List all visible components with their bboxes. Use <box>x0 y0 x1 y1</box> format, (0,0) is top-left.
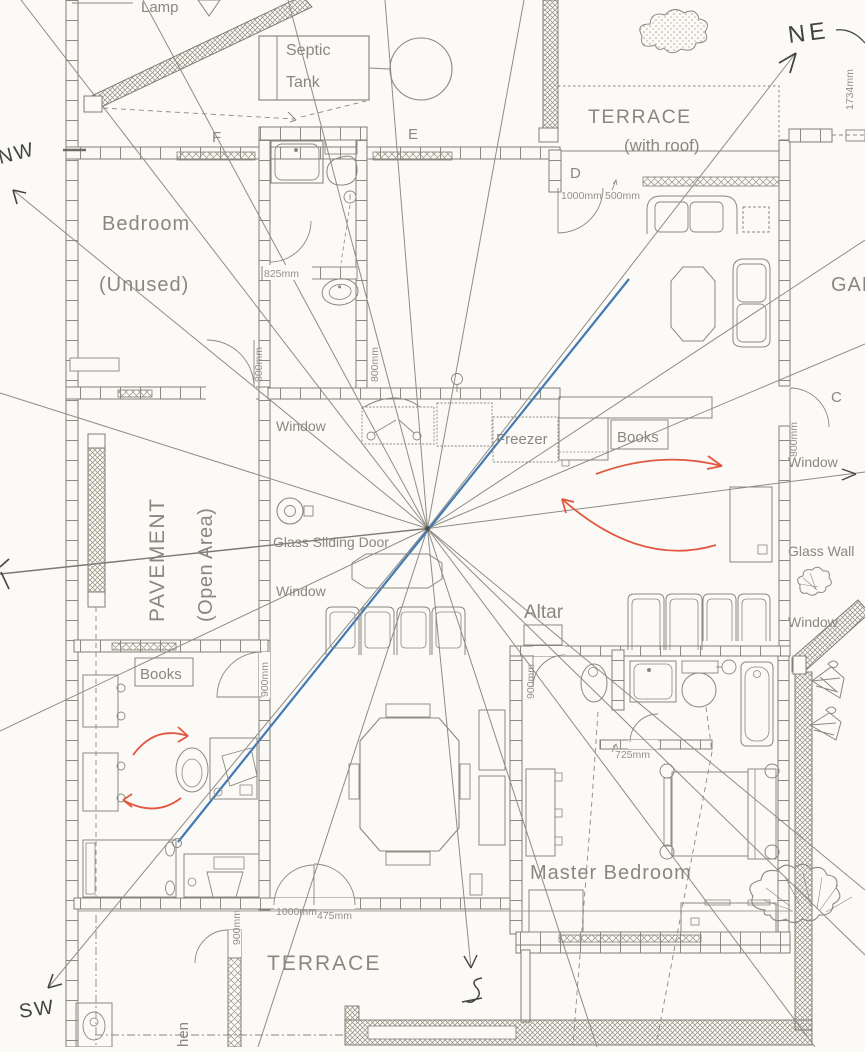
svg-text:800mm: 800mm <box>369 347 381 382</box>
svg-text:475mm: 475mm <box>317 910 352 922</box>
svg-text:825mm: 825mm <box>264 268 299 280</box>
svg-text:E: E <box>408 126 418 143</box>
svg-text:Window: Window <box>276 418 327 434</box>
svg-text:C: C <box>831 389 842 406</box>
svg-text:Tank: Tank <box>286 74 321 91</box>
svg-text:Master Bedroom: Master Bedroom <box>530 862 692 884</box>
svg-text:Bedroom: Bedroom <box>102 213 190 235</box>
svg-text:Window: Window <box>276 583 327 599</box>
svg-text:Books: Books <box>617 429 659 446</box>
svg-text:Altar: Altar <box>524 602 564 623</box>
svg-text:Glass Wall: Glass Wall <box>788 543 854 559</box>
svg-text:725mm: 725mm <box>615 749 650 761</box>
svg-text:900mm: 900mm <box>525 664 537 699</box>
svg-text:(with roof): (with roof) <box>624 136 700 155</box>
svg-text:TERRACE: TERRACE <box>267 952 381 975</box>
svg-text:Window: Window <box>788 454 839 470</box>
svg-text:1000mm: 1000mm <box>561 190 602 202</box>
svg-text:Books: Books <box>140 666 182 683</box>
svg-text:(Open Area): (Open Area) <box>195 508 217 622</box>
svg-text:Freezer: Freezer <box>496 431 548 448</box>
svg-text:Septic: Septic <box>286 42 330 59</box>
svg-text:900mm: 900mm <box>231 910 243 945</box>
svg-text:Lamp: Lamp <box>141 0 179 16</box>
svg-text:900mm: 900mm <box>259 662 271 697</box>
svg-text:D: D <box>570 165 581 182</box>
svg-text:1734mm: 1734mm <box>844 69 856 110</box>
svg-text:800mm: 800mm <box>788 422 800 457</box>
svg-text:(Unused): (Unused) <box>99 274 189 296</box>
svg-text:PAVEMENT: PAVEMENT <box>146 498 169 622</box>
svg-text:hen: hen <box>175 1022 192 1047</box>
svg-text:GAR: GAR <box>831 274 865 296</box>
svg-text:Glass Sliding Door: Glass Sliding Door <box>273 534 389 550</box>
svg-text:1000mm: 1000mm <box>276 906 317 918</box>
svg-text:800mm: 800mm <box>253 347 265 382</box>
svg-text:Window: Window <box>788 614 839 630</box>
svg-text:TERRACE: TERRACE <box>588 106 692 128</box>
svg-text:NE: NE <box>786 17 830 49</box>
svg-text:500mm: 500mm <box>605 190 640 202</box>
svg-text:F: F <box>212 129 221 146</box>
